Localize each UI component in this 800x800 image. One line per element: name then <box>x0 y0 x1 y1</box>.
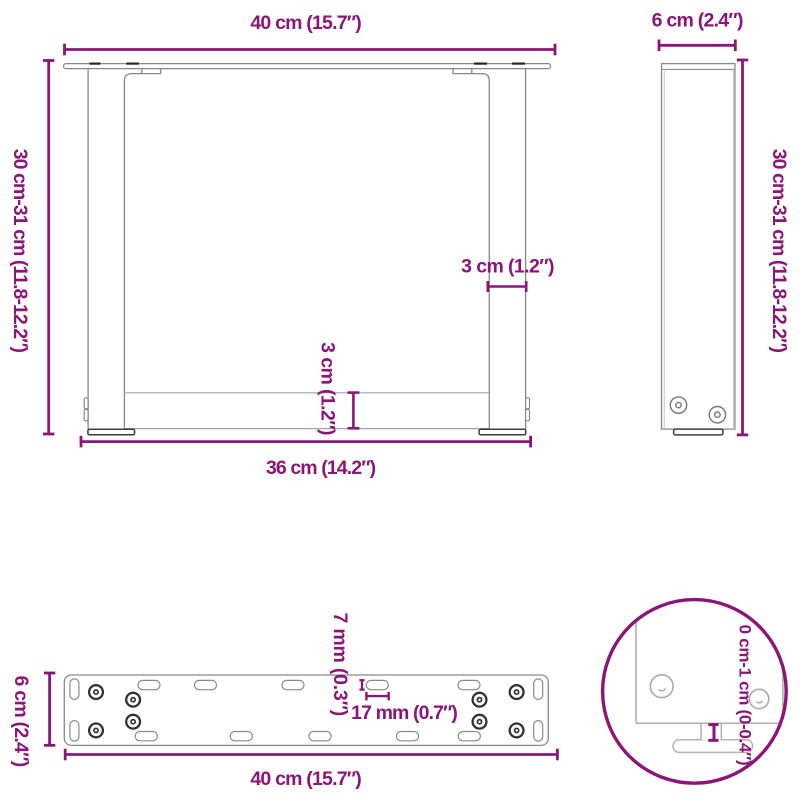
svg-text:40 cm (15.7″): 40 cm (15.7″) <box>250 12 361 34</box>
svg-text:30 cm-31 cm (11.8-12.2″): 30 cm-31 cm (11.8-12.2″) <box>9 149 31 353</box>
svg-text:36 cm (14.2″): 36 cm (14.2″) <box>266 457 376 479</box>
svg-text:3 cm (1.2″): 3 cm (1.2″) <box>461 256 554 278</box>
svg-text:7 mm (0.3″): 7 mm (0.3″) <box>329 613 351 717</box>
svg-text:6 cm (2.4″): 6 cm (2.4″) <box>652 10 743 32</box>
svg-text:30 cm-31 cm (11.8-12.2″): 30 cm-31 cm (11.8-12.2″) <box>768 149 790 353</box>
svg-text:40 cm (15.7″): 40 cm (15.7″) <box>250 768 361 790</box>
svg-text:6 cm (2.4″): 6 cm (2.4″) <box>10 675 32 766</box>
svg-text:0 cm-1 cm (0-0.4″): 0 cm-1 cm (0-0.4″) <box>736 625 755 766</box>
svg-text:3 cm (1.2″): 3 cm (1.2″) <box>317 342 339 435</box>
svg-text:17 mm (0.7″): 17 mm (0.7″) <box>351 702 457 724</box>
